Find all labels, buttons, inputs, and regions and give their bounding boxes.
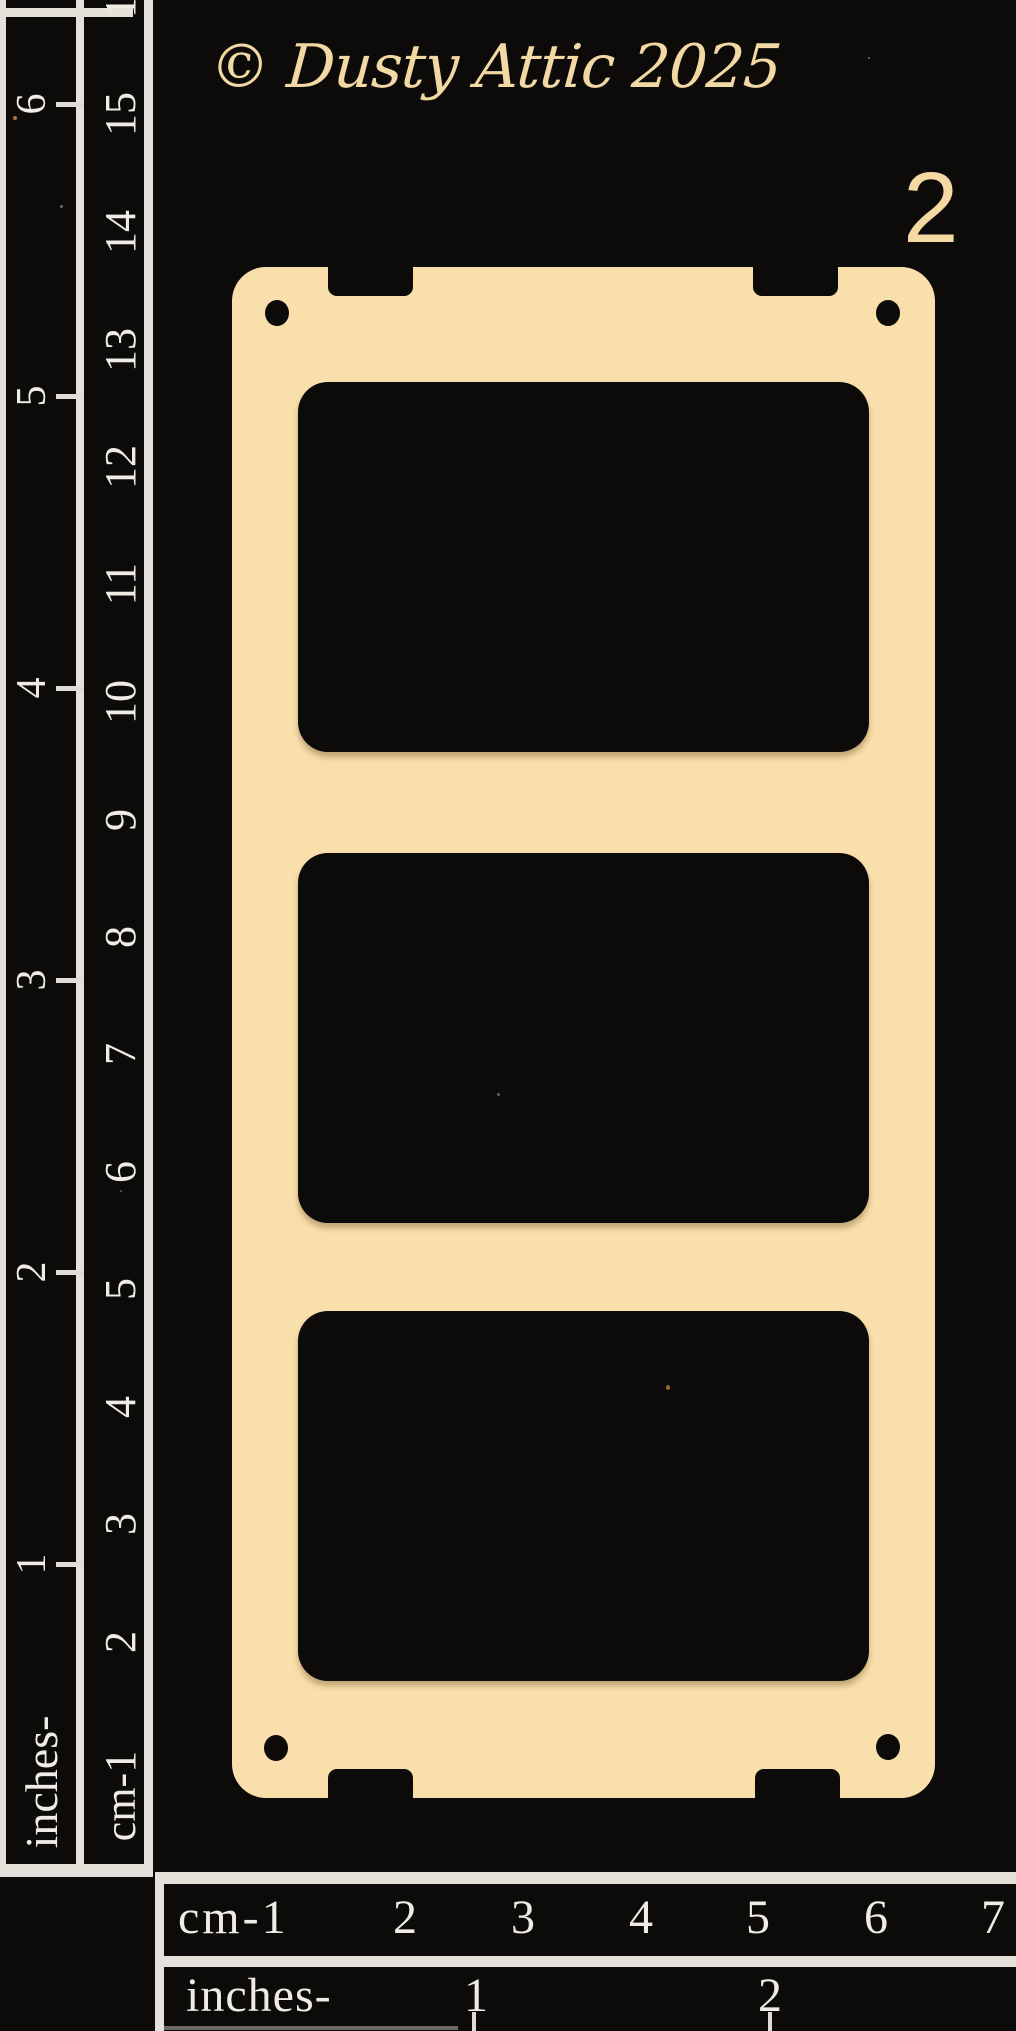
cm-number: 16 [99,0,143,18]
cm-number: 12 [99,445,143,489]
inch-number: 1 [11,1554,53,1575]
dust-speck [666,1385,670,1390]
left-ruler-bottom-border [0,1864,153,1877]
cm-number: 4 [99,1396,143,1418]
inch-number: 4 [11,678,53,699]
cm-number: 15 [99,92,143,136]
inch-tick [56,394,84,399]
bottom-ruler-top-border [155,1872,1016,1884]
dust-speck [868,57,870,59]
inch-number: 5 [11,386,53,407]
bottom-inch-tick [472,2012,476,2031]
corner-hole-top-right [876,300,900,326]
top-notch-left [328,267,413,296]
corner-hole-bottom-left [264,1735,288,1761]
bottom-cm-number: 2 [393,1894,417,1942]
bottom-notch-left [328,1769,413,1798]
corner-hole-top-left [265,300,289,326]
dust-speck [120,1190,122,1192]
left-ruler-separator-line [76,0,84,1877]
top-notch-right [753,267,838,296]
bottom-ruler-bottom-line [158,2026,458,2030]
inches-unit-label: inches- [19,1716,65,1849]
bottom-inch-number: 1 [464,1972,488,2020]
inch-tick [56,1270,84,1275]
bottom-ruler-left-border [155,1872,164,2031]
copyright-text: © Dusty Attic 2025 [208,34,773,100]
bottom-notch-right [755,1769,840,1798]
bottom-ruler-middle-line [155,1956,1016,1967]
inch-number: 3 [11,970,53,991]
cm-number: 11 [99,563,143,605]
cm-number: 9 [99,809,143,831]
bottom-cm-number: 6 [864,1894,888,1942]
chipboard-frame [232,267,935,1798]
board-window-2 [298,853,869,1223]
dust-speck [497,1093,500,1096]
inch-tick [56,102,84,107]
bottom-cm-number: 4 [629,1894,653,1942]
cm-number: 5 [99,1278,143,1300]
cm-number: 13 [99,328,143,372]
bottom-cm-number: 5 [746,1894,770,1942]
dust-speck [60,205,63,208]
cm-number: 14 [99,210,143,254]
inch-tick [56,686,84,691]
bottom-inch-tick [768,2012,772,2031]
cm-unit-label: cm-1 [99,1751,143,1841]
inch-tick [56,1562,84,1567]
left-ruler-right-border [144,0,153,1877]
inch-number: 2 [11,1262,53,1283]
cm-number: 10 [99,680,143,724]
cm-number: 6 [99,1161,143,1183]
board-window-1 [298,382,869,752]
cm-number: 3 [99,1513,143,1535]
cm-number: 7 [99,1043,143,1065]
dust-speck [13,116,17,120]
corner-hole-bottom-right [876,1734,900,1760]
bottom-cm-number: 7 [981,1894,1005,1942]
bottom-inches-unit-label: inches- [186,1972,332,2020]
bottom-cm-unit-label: cm-1 [178,1894,289,1942]
bottom-cm-number: 3 [511,1894,535,1942]
cm-number: 2 [99,1631,143,1653]
sheet-number: 2 [903,158,959,258]
board-window-3 [298,1311,869,1681]
product-photo: 16 15 14 13 12 11 10 9 8 7 6 5 4 3 2 cm-… [0,0,1016,2031]
left-ruler: 16 15 14 13 12 11 10 9 8 7 6 5 4 3 2 cm-… [0,0,153,1877]
inch-number: 6 [11,94,53,115]
left-ruler-left-border [0,0,6,1877]
inch-tick [56,978,84,983]
cm-number: 8 [99,926,143,948]
